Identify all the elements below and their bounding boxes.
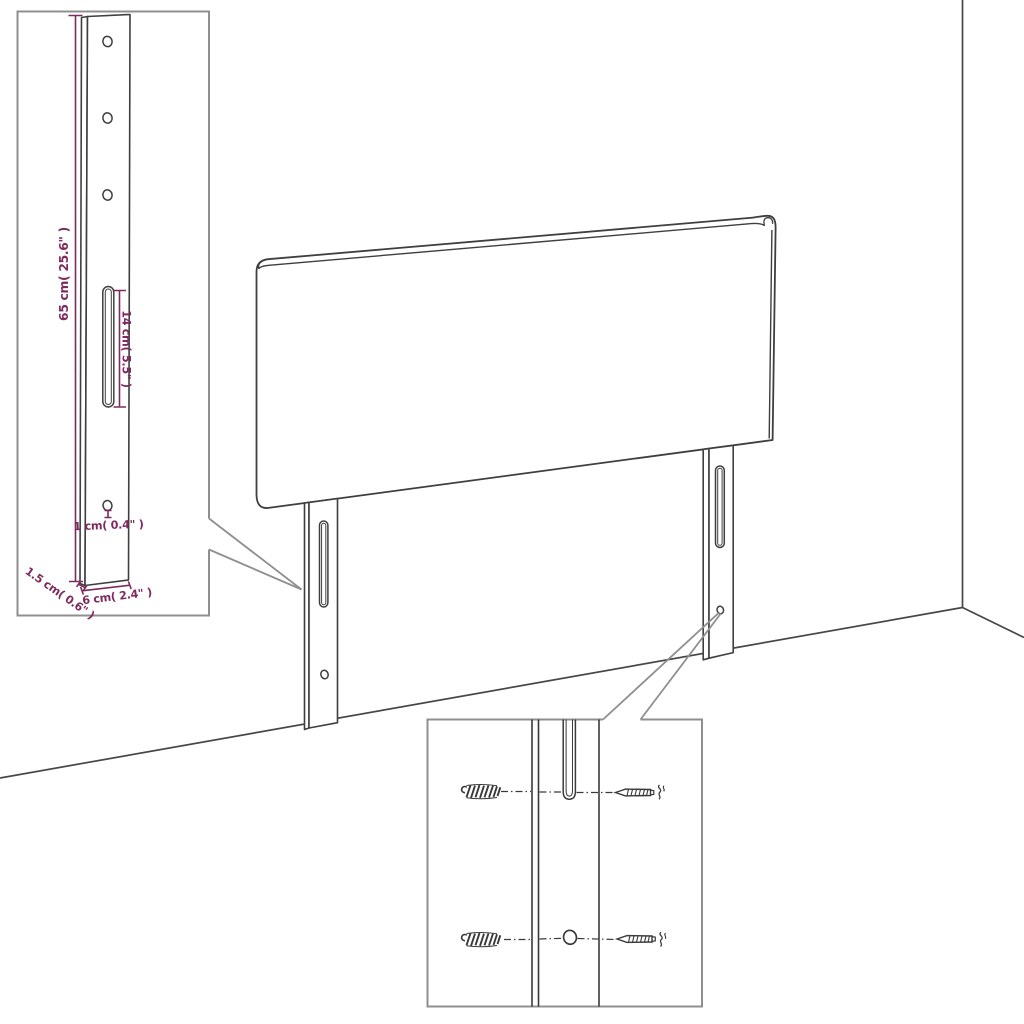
left-mounting-leg <box>305 499 338 730</box>
diagram-canvas: 65 cm( 25.6" ) 14 cm( 5.5" ) 1 cm( 0.4" … <box>0 0 1024 1024</box>
callout-wedge-left <box>209 519 302 590</box>
screw-icon <box>616 789 654 796</box>
wall-plug-icon <box>462 932 501 946</box>
hardware-box-border <box>428 720 703 1007</box>
strip-slot-inner <box>566 720 572 797</box>
screw-icon <box>617 936 655 943</box>
break-squiggle-icon <box>658 785 664 799</box>
dimension-label-slot-length: 14 cm( 5.5" ) <box>120 310 133 388</box>
hardware-detail-inset <box>428 613 721 1007</box>
strip-hole <box>562 929 578 946</box>
headboard-panel <box>257 216 776 508</box>
wall-plug-icon <box>462 784 501 798</box>
dimension-label-leg-height: 65 cm( 25.6" ) <box>57 227 71 321</box>
strip-slot <box>563 720 575 800</box>
bracket-drawing <box>80 15 130 586</box>
dimension-label-hole-size: 1 cm( 0.4" ) <box>73 518 144 533</box>
floor-line-right <box>963 608 1024 638</box>
right-leg-side-face <box>703 449 709 660</box>
enlarged-leg-strip <box>532 720 599 1007</box>
right-leg-front-face <box>709 445 733 658</box>
right-mounting-leg <box>703 445 733 659</box>
floor-line-left <box>0 608 963 779</box>
left-leg-front-face <box>309 499 338 728</box>
break-squiggle-icon <box>660 932 666 946</box>
headboard-assembly-diagram: 65 cm( 25.6" ) 14 cm( 5.5" ) 1 cm( 0.4" … <box>0 0 1024 1024</box>
